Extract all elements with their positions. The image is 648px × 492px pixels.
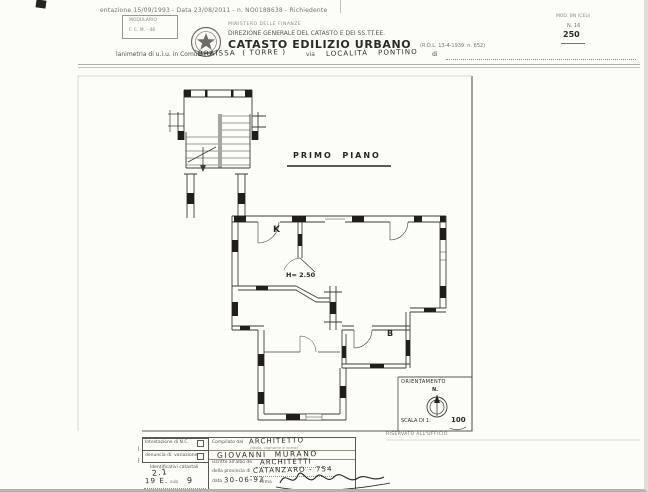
orientation-title: ORIENTAMENTO [401, 380, 446, 385]
signature-scribble [272, 465, 402, 492]
data-label: data [212, 480, 222, 485]
height-annotation: H= 2.50 [286, 272, 315, 279]
checkbox-label-intestazione: Intestazione di N.C. [145, 441, 189, 446]
scale-value: 100 [451, 417, 466, 424]
provincia-label: della provincia di [212, 470, 250, 475]
floor-plan-drawing [0, 0, 648, 492]
sub-label: sub [170, 481, 178, 486]
scale-label: SCALA DI 1: [401, 419, 431, 424]
north-label: N. [432, 388, 438, 393]
sub-handwritten: 9 [187, 477, 193, 486]
data-handwritten: 30-06-93 [224, 477, 265, 485]
floor-title: PRIMO PIANO [293, 152, 381, 160]
identificativi-handwritten-2: 19 E. [145, 478, 168, 486]
checkbox-variazione [197, 453, 204, 460]
firma-label: firma [260, 481, 272, 486]
checkbox-label-variazione: denuncia di: variazione [145, 454, 197, 459]
compilato-label: Compilato dal [212, 441, 243, 446]
room-label-kitchen: K [273, 226, 280, 235]
checkbox-intestazione [197, 440, 204, 447]
form-divider [208, 438, 209, 492]
apartment-walls [232, 216, 446, 420]
reserved-office-label: RISERVATO ALL'UFFICIO [386, 433, 448, 438]
albo-label: iscritto all'albo de [212, 461, 252, 466]
scanned-document-page: entazione 15/09/1993 - Data 23/08/2011 -… [0, 0, 648, 492]
room-label-bath: B [387, 330, 393, 338]
staircase [168, 90, 266, 218]
